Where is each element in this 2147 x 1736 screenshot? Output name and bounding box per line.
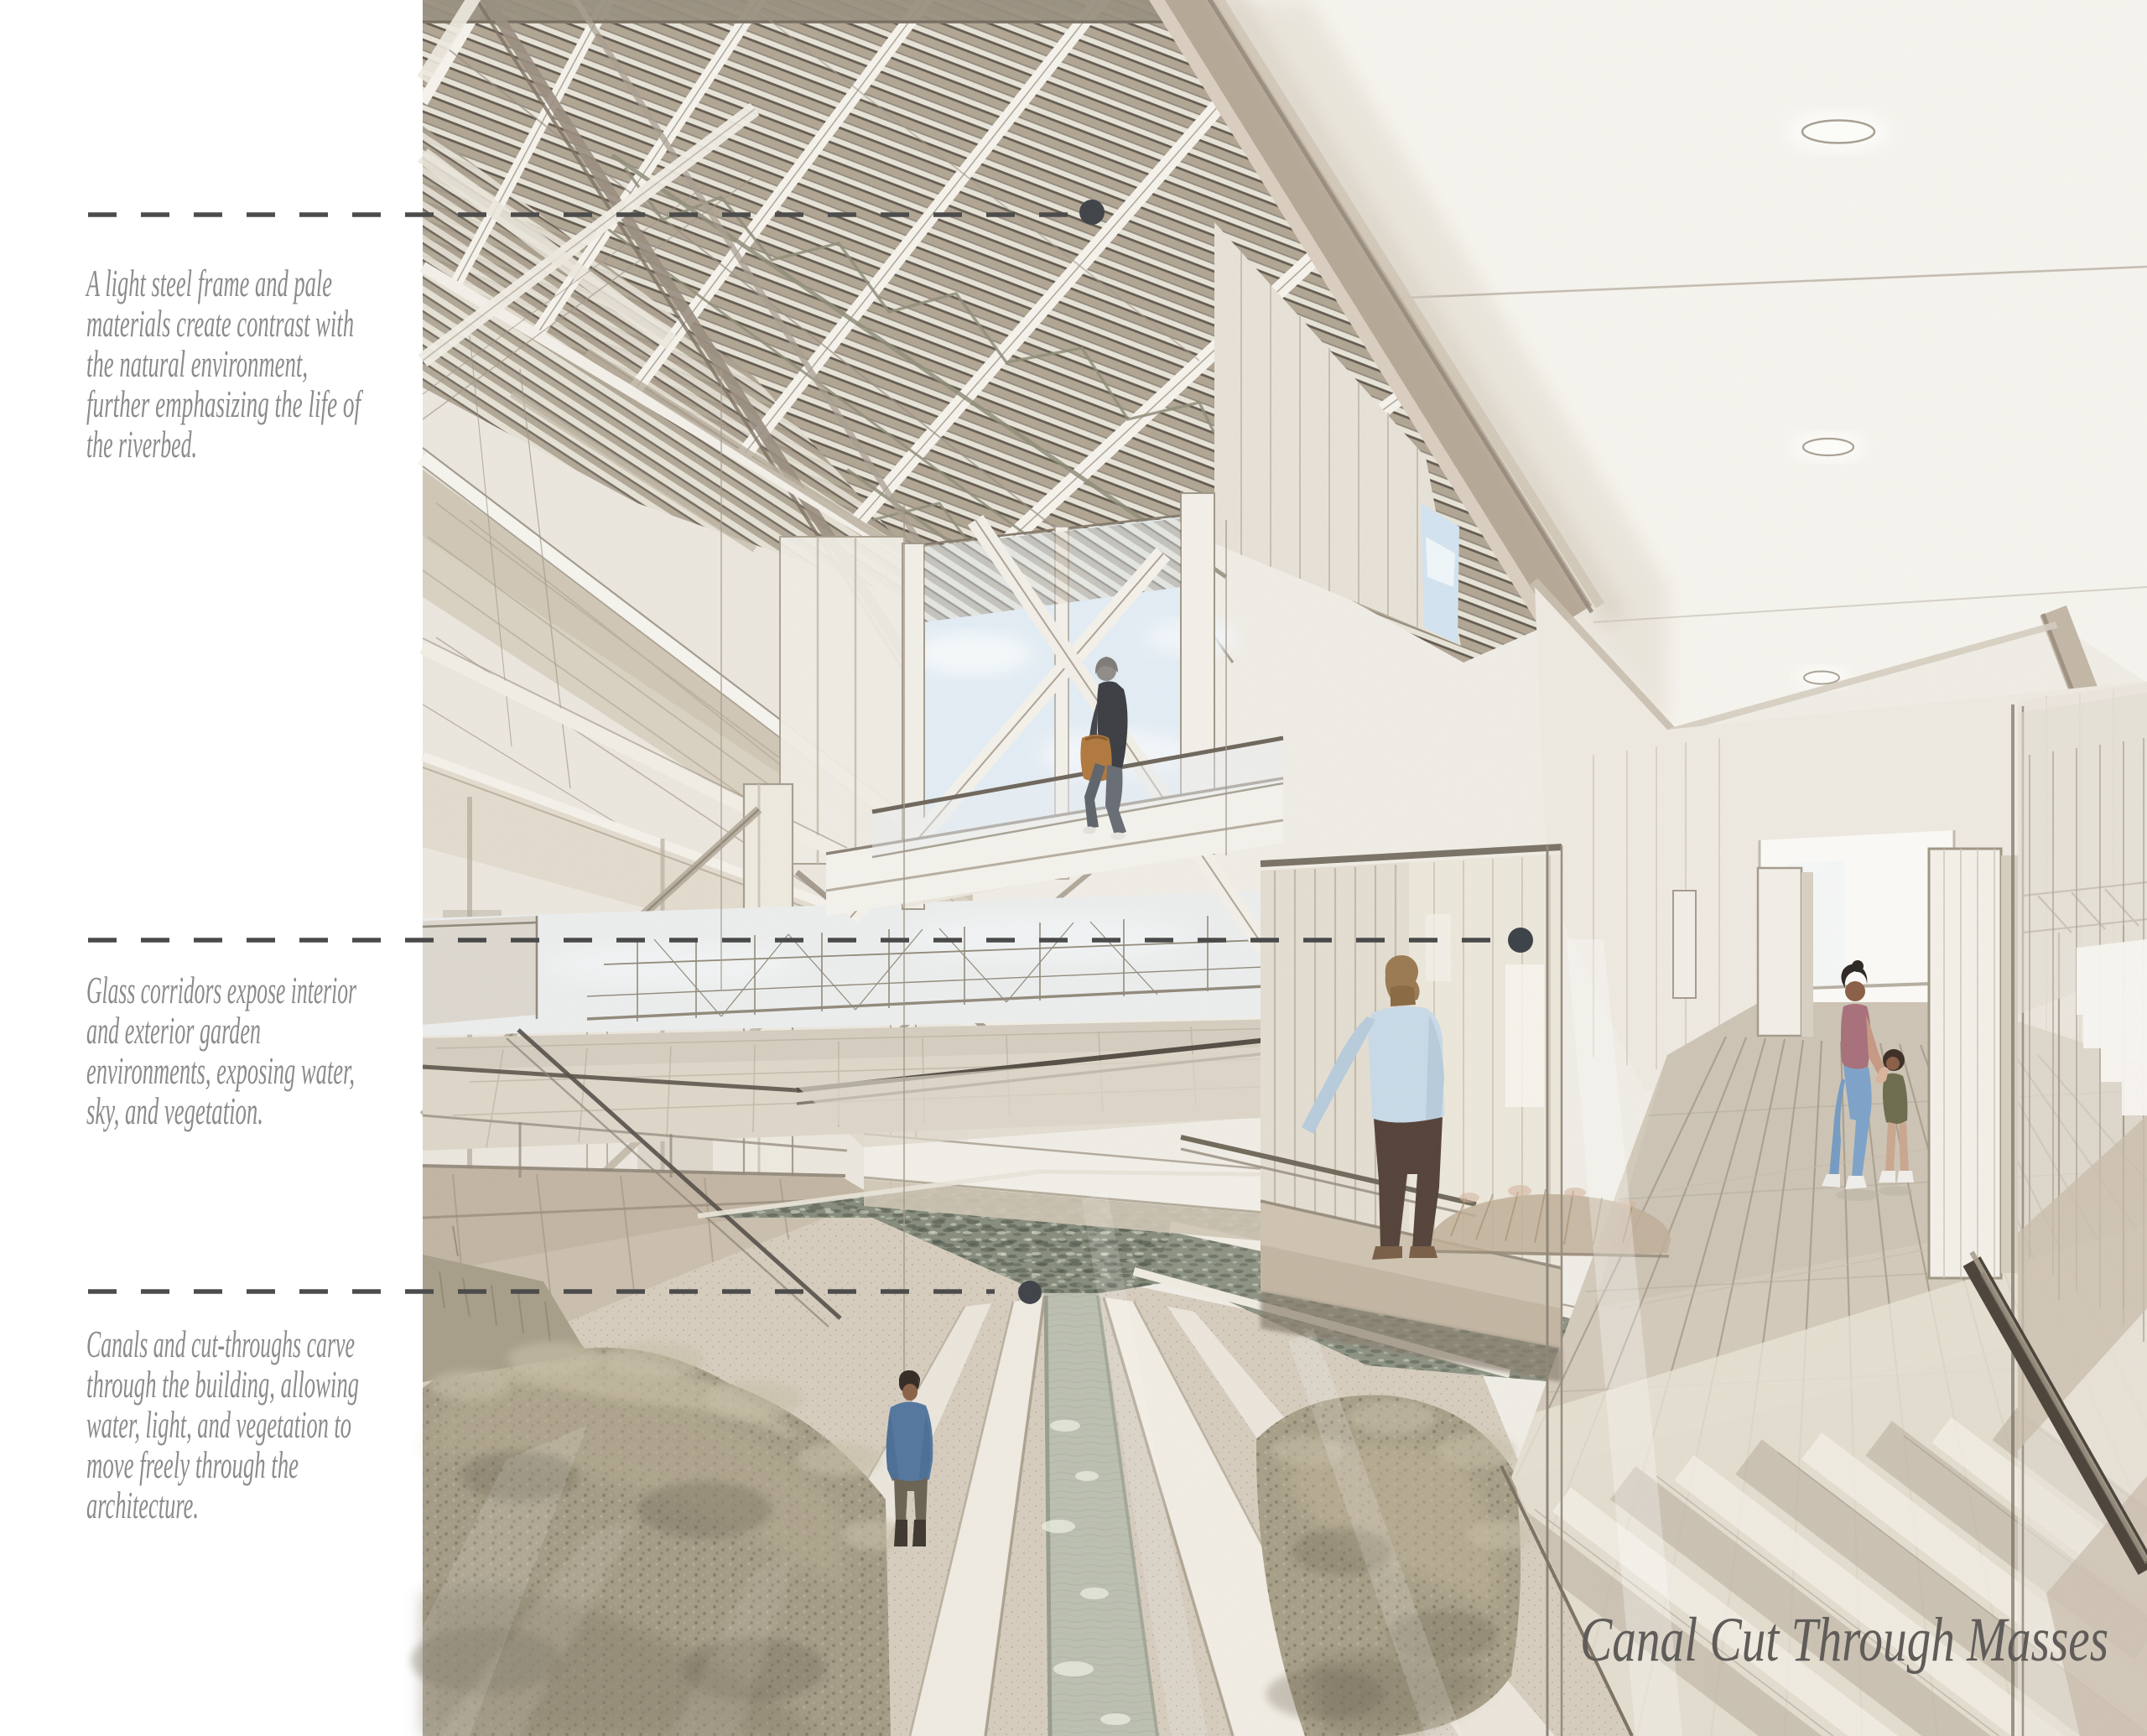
svg-text:and exterior garden: and exterior garden bbox=[86, 1009, 261, 1052]
svg-text:architecture.: architecture. bbox=[86, 1484, 199, 1526]
svg-text:sky, and vegetation.: sky, and vegetation. bbox=[86, 1089, 263, 1132]
svg-text:Canals and cut-throughs carve: Canals and cut-throughs carve bbox=[86, 1323, 355, 1365]
svg-text:Canal Cut Through Masses: Canal Cut Through Masses bbox=[1580, 1605, 2108, 1675]
svg-text:environments, exposing water,: environments, exposing water, bbox=[86, 1049, 355, 1092]
svg-text:the riverbed.: the riverbed. bbox=[86, 423, 197, 465]
svg-text:A light steel frame and pale: A light steel frame and pale bbox=[85, 262, 332, 304]
svg-text:water, light, and vegetation t: water, light, and vegetation to bbox=[86, 1403, 351, 1446]
svg-text:Glass corridors expose interio: Glass corridors expose interior bbox=[86, 969, 357, 1011]
svg-text:through the building, allowing: through the building, allowing bbox=[86, 1363, 359, 1406]
svg-text:move freely through the: move freely through the bbox=[86, 1443, 299, 1486]
svg-text:the natural environment,: the natural environment, bbox=[86, 342, 308, 385]
svg-text:further emphasizing the life o: further emphasizing the life of bbox=[86, 382, 364, 425]
svg-text:materials create contrast with: materials create contrast with bbox=[86, 302, 354, 345]
